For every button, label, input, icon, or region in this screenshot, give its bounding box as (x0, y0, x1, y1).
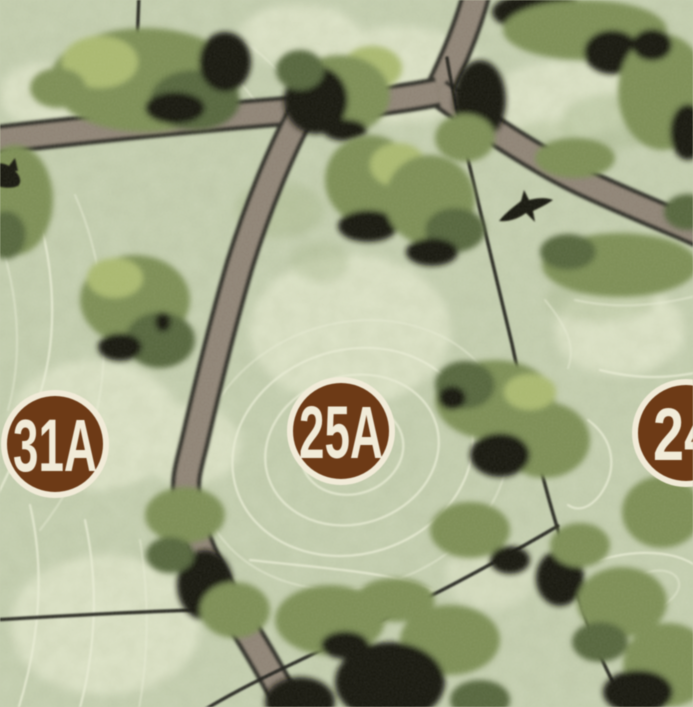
lot-badge-31a[interactable]: 31A (4, 393, 106, 495)
lot-badge-25a-label: 25A (299, 391, 383, 474)
site-plan-map: 31A 25A 24 (0, 0, 693, 707)
grain-overlay (0, 0, 693, 707)
lot-badge-31a-label: 31A (13, 404, 97, 487)
lot-badge-25a[interactable]: 25A (290, 380, 392, 482)
lot-badge-24-label: 24 (653, 393, 693, 476)
